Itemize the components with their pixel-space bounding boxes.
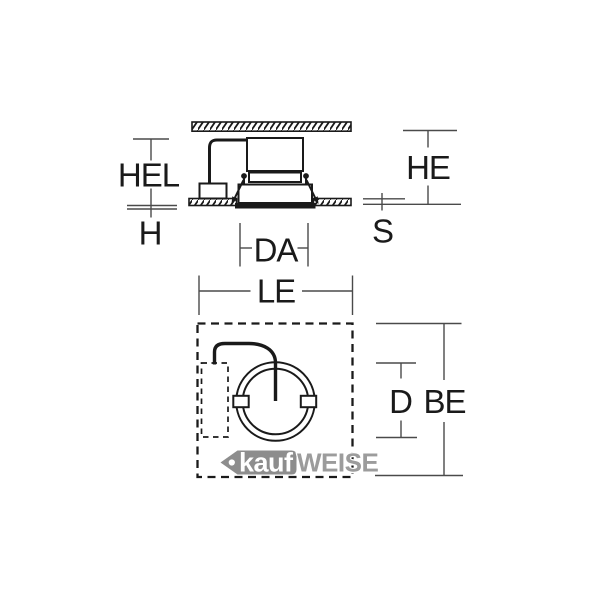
upper-slab-hatch [192,122,351,131]
mounting-tab-left [233,396,248,407]
luminaire-dimension-diagram: HEL H HE S DA LE [0,0,600,600]
dim-label-he: HE [406,149,450,186]
dim-label-da: DA [254,232,299,269]
dimension-da: DA [240,223,308,269]
dimension-he: HE [403,131,457,205]
mounting-tab-right [301,396,316,407]
trim-flange [235,203,316,209]
watermark-suffix: WEISE [297,448,378,478]
dim-label-be: BE [423,383,465,420]
side-section-view [189,122,351,209]
connection-box-outline-dashed [202,363,229,437]
dimension-d: D [376,363,417,438]
ceiling-hatch-right [314,199,352,206]
dim-label-d: D [389,383,412,420]
diagram-canvas: HEL H HE S DA LE [0,0,600,600]
tag-dot-icon [229,459,235,465]
dim-label-s: S [372,213,393,250]
dimension-h: H [139,215,162,252]
dim-label-le: LE [257,273,295,310]
dim-label-h: H [139,215,162,252]
dimension-hel: HEL [118,139,180,218]
driver-housing [247,138,303,171]
brand-watermark: kauf WEISE [221,448,379,478]
dimension-s: S [363,193,461,250]
trim-housing [239,185,313,204]
watermark-prefix: kauf [239,448,294,478]
housing-plate [249,173,301,183]
connection-box [200,184,227,199]
dimension-le: LE [199,273,353,316]
ceiling-hatch-left [189,199,237,206]
dim-label-hel: HEL [118,157,180,194]
